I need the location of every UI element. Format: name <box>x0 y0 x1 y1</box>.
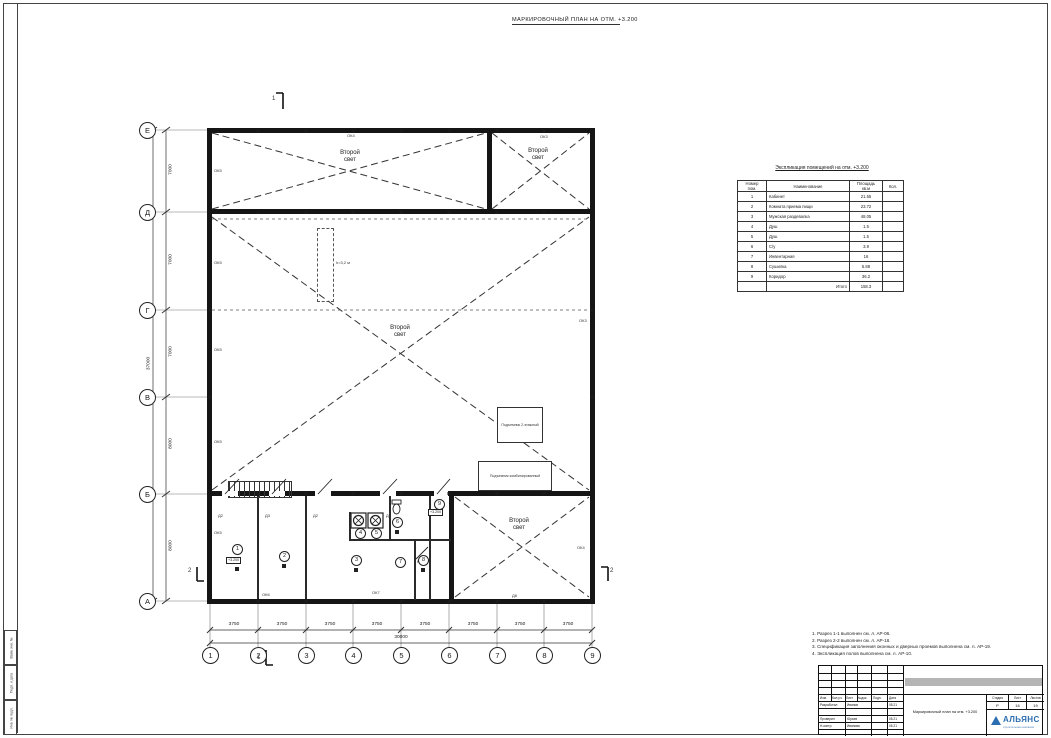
room-bubble-3: 3 <box>351 555 362 566</box>
dim-bottom-8: 3750 <box>553 622 583 627</box>
designation-band <box>905 678 1042 686</box>
section-mark-2-left: 2 <box>188 568 191 574</box>
sidebar-label: Инв. № подл. <box>10 702 14 735</box>
axis-row-g: Г <box>139 302 156 319</box>
room-bubble-2: 2 <box>279 551 290 562</box>
tb-name-1: Иванов <box>847 703 871 707</box>
cell-num-empty <box>738 282 767 292</box>
cell-area: 1.5 <box>850 222 883 232</box>
tb-date-3: 05.21 <box>889 724 903 728</box>
alliance-logo-icon <box>991 716 1001 725</box>
section-mark-1-bottom: 1 <box>257 655 260 661</box>
room-tag-square-8 <box>421 568 425 572</box>
schedule-row: 3Мужская раздевалка48.05 <box>738 212 904 222</box>
door-tag-d3-1: Д3 <box>265 513 270 518</box>
axis-row-d: Д <box>139 204 156 221</box>
dimension-ticks <box>149 127 595 646</box>
room-bubble-1: 1 <box>232 544 243 555</box>
column-markers <box>209 130 594 604</box>
tb-header-podp: Подп. <box>873 696 887 700</box>
sheet-title: МАРКИРОВОЧНЫЙ ПЛАН НА ОТМ. +3.200 <box>512 17 620 25</box>
cell-qty <box>883 212 904 222</box>
cell-num: 8 <box>738 262 767 272</box>
dim-left-3: 7000 <box>169 337 174 367</box>
axis-row-b: Б <box>139 486 156 503</box>
cell-area: 1.5 <box>850 232 883 242</box>
room-bubble-5: 5 <box>371 528 382 539</box>
axis-row-a: А <box>139 593 156 610</box>
cell-num: 1 <box>738 192 767 202</box>
dim-bottom-6: 3750 <box>458 622 488 627</box>
cell-num: 9 <box>738 272 767 282</box>
cell-qty <box>883 192 904 202</box>
cell-area: 36.2 <box>850 272 883 282</box>
equipment-box-2: Подъемник комбинированный <box>478 461 552 491</box>
cell-num: 3 <box>738 212 767 222</box>
total-label-cell: Итого <box>767 282 850 292</box>
cell-qty-empty <box>883 282 904 292</box>
alliance-logo-text: АЛЬЯНС <box>1003 715 1043 724</box>
tb-doc-title: Маркировочный план на отм. +3.200 <box>905 710 985 715</box>
dim-bottom-3: 3750 <box>315 622 345 627</box>
room-bubble-7: 7 <box>395 557 406 568</box>
second-light-label-br: Второй свет <box>487 518 551 532</box>
axis-col-5: 5 <box>393 647 410 664</box>
sidebar-cell-podp: Подп. и дата <box>4 665 17 700</box>
cell-num: 4 <box>738 222 767 232</box>
tb-date-1: 05.21 <box>889 703 903 707</box>
schedule-row: 4Душ1.5 <box>738 222 904 232</box>
cell-qty <box>883 222 904 232</box>
door-leaves <box>225 479 450 559</box>
cell-name: Коридор <box>767 272 850 282</box>
schedule-row: 6С/у3.9 <box>738 242 904 252</box>
title-block: Изм. Кол.уч. Лист №док. Подп. Дата Разра… <box>818 665 1043 735</box>
cell-num: 7 <box>738 252 767 262</box>
dim-left-total: 37000 <box>147 346 152 382</box>
schedule-total-row: Итого 158.3 <box>738 282 904 292</box>
cell-num: 6 <box>738 242 767 252</box>
tb-list-label: Лист <box>1009 696 1026 700</box>
alliance-logo-subtext: строительная компания <box>1003 725 1043 729</box>
cell-name: Сушилка <box>767 262 850 272</box>
room-tag-square-1 <box>235 567 239 571</box>
window-tag-ok5-2: ОК5 <box>214 260 222 265</box>
axis-extensions <box>155 130 592 647</box>
axis-col-3: 3 <box>298 647 315 664</box>
sidebar-label: Подп. и дата <box>10 667 14 700</box>
second-light-label-tr: Второй свет <box>506 148 570 162</box>
cell-area: 5.88 <box>850 262 883 272</box>
cell-area: 3.9 <box>850 242 883 252</box>
cell-name: Мужская раздевалка <box>767 212 850 222</box>
door-tag-d8: Д8 <box>512 593 517 598</box>
window-tag-ok6: ОК6 <box>262 592 270 597</box>
toilet-icon <box>392 500 401 514</box>
dim-bottom-4: 3750 <box>362 622 392 627</box>
cell-qty <box>883 242 904 252</box>
level-mark-room1: +3.200 <box>226 557 241 564</box>
axis-col-8: 8 <box>536 647 553 664</box>
tb-header-izm: Изм. <box>820 696 831 700</box>
schedule-row: 9Коридор36.2 <box>738 272 904 282</box>
dim-bottom-total: 30000 <box>381 635 421 640</box>
schedule-row: 7Инвентарная16 <box>738 252 904 262</box>
window-tag-ok5-3: ОК5 <box>214 347 222 352</box>
tb-stage-label: Стадия <box>987 696 1008 700</box>
dim-left-1: 7000 <box>169 155 174 185</box>
room-bubble-4: 4 <box>355 528 366 539</box>
cell-name: Комната приема пищи <box>767 202 850 212</box>
section-flags <box>197 93 608 665</box>
door-openings <box>222 491 448 496</box>
second-light-label-tl: Второй свет <box>318 150 382 164</box>
axis-row-v: В <box>139 389 156 406</box>
drawing-sheet: МАРКИРОВОЧНЫЙ ПЛАН НА ОТМ. +3.200 Подъем… <box>0 0 1051 738</box>
cell-name: Душ <box>767 232 850 242</box>
schedule-row: 8Сушилка5.88 <box>738 262 904 272</box>
room-bubble-6: 6 <box>392 517 403 528</box>
door-tag-d2-3: Д2 <box>386 513 391 518</box>
note-line-1: 1. Разрез 1-1 выполнен см. л. АР-06. <box>812 631 991 638</box>
cell-num: 5 <box>738 232 767 242</box>
axis-col-7: 7 <box>489 647 506 664</box>
window-tag-ok5-1: ОК5 <box>214 168 222 173</box>
room-tag-square-3 <box>354 568 358 572</box>
col-header-num: Номер пом. <box>738 181 767 192</box>
tb-header-data: Дата <box>889 696 903 700</box>
total-value-cell: 158.3 <box>850 282 883 292</box>
tb-role-2: Проверил <box>820 717 845 721</box>
schedule-row: 1Кабинет21.55 <box>738 192 904 202</box>
tb-list-value: 16 <box>1009 703 1026 708</box>
window-tag-ok5-5: ОК5 <box>214 530 222 535</box>
cell-name: Душ <box>767 222 850 232</box>
dim-bottom-1: 3750 <box>219 622 249 627</box>
dim-left-5: 8000 <box>169 531 174 561</box>
window-tag-ok5-4: ОК5 <box>214 439 222 444</box>
col-header-name: Наименование <box>767 181 850 192</box>
tb-name-2: Юрьев <box>847 717 871 721</box>
axis-dashed-lines <box>212 219 589 310</box>
room-tag-square-2 <box>282 564 286 568</box>
tb-stage-value: Р <box>987 703 1008 708</box>
tb-role-3: Н.контр. <box>820 724 845 728</box>
cell-name: С/у <box>767 242 850 252</box>
cell-num: 2 <box>738 202 767 212</box>
axis-col-9: 9 <box>584 647 601 664</box>
axis-col-1: 1 <box>202 647 219 664</box>
window-tag-ok7: ОК7 <box>372 590 380 595</box>
dim-bottom-7: 3750 <box>505 622 535 627</box>
cell-qty <box>883 262 904 272</box>
tb-listov-label: Листов <box>1027 696 1044 700</box>
shaft-height-label: h=3,2 м <box>336 260 350 265</box>
cell-qty <box>883 272 904 282</box>
axis-col-6: 6 <box>441 647 458 664</box>
tb-header-list: Лист <box>846 696 857 700</box>
tb-date-2: 05.21 <box>889 717 903 721</box>
tb-header-kol: Кол.уч. <box>832 696 845 700</box>
section-mark-2-right: 2 <box>610 568 613 574</box>
sidebar-label: Взам. инв. № <box>10 632 14 665</box>
tb-listov-value: 19 <box>1027 703 1044 708</box>
level-mark-room9: +3.200 <box>428 509 443 516</box>
col-header-qty: Кол. <box>883 181 904 192</box>
note-line-4: 4. Экспликация полов выполнена см. л. АР… <box>812 651 991 658</box>
tb-role-1: Разработал <box>820 703 845 707</box>
window-tag-ok4-top: ОК4 <box>347 133 355 138</box>
col-header-area: Площадь кв.м <box>850 181 883 192</box>
room-tag-square-6 <box>395 530 399 534</box>
room-bubble-8: 8 <box>418 555 429 566</box>
general-notes: 1. Разрез 1-1 выполнен см. л. АР-06. 2. … <box>812 631 991 658</box>
note-line-2: 2. Разрез 2-2 выполнен см. л. АР-18. <box>812 638 991 645</box>
tb-name-3: Иванова <box>847 724 871 728</box>
cell-area: 23.72 <box>850 202 883 212</box>
cell-area: 48.05 <box>850 212 883 222</box>
axis-row-e: Е <box>139 122 156 139</box>
cell-qty <box>883 202 904 212</box>
window-tag-ok3-top: ОК3 <box>540 134 548 139</box>
cell-name: Инвентарная <box>767 252 850 262</box>
door-tag-d2-2: Д2 <box>313 513 318 518</box>
dim-bottom-2: 3750 <box>267 622 297 627</box>
cell-area: 21.55 <box>850 192 883 202</box>
schedule-title: Экспликация помещений на отм. +3.200 <box>742 165 902 171</box>
dim-left-2: 7000 <box>169 245 174 275</box>
second-light-label-mid: Второй свет <box>368 325 432 339</box>
cell-qty <box>883 252 904 262</box>
schedule-row: 2Комната приема пищи23.72 <box>738 202 904 212</box>
schedule-header-row: Номер пом. Наименование Площадь кв.м Кол… <box>738 181 904 192</box>
plan-linework <box>0 0 1051 738</box>
shower-cabins <box>351 513 383 528</box>
note-line-3: 3. Спецификация заполнения оконных и две… <box>812 644 991 651</box>
axis-col-4: 4 <box>345 647 362 664</box>
door-tag-d2-1: Д2 <box>218 513 223 518</box>
equipment-box-1: Подъемник 2-этажный <box>497 407 543 443</box>
schedule-row: 5Душ1.5 <box>738 232 904 242</box>
cell-qty <box>883 232 904 242</box>
section-mark-1-top: 1 <box>272 96 275 102</box>
dim-bottom-5: 3750 <box>410 622 440 627</box>
dimension-lines <box>153 130 592 643</box>
tb-header-doc: №док. <box>858 696 871 700</box>
cell-name: Кабинет <box>767 192 850 202</box>
window-tag-ok4-right: ОК4 <box>577 545 585 550</box>
sidebar-cell-inv: Инв. № подл. <box>4 700 17 735</box>
room-schedule-table: Номер пом. Наименование Площадь кв.м Кол… <box>737 180 904 292</box>
cell-area: 16 <box>850 252 883 262</box>
dim-left-4: 8000 <box>169 429 174 459</box>
sidebar-cell-vzam: Взам. инв. № <box>4 630 17 665</box>
window-tag-ok3-right: ОК3 <box>579 318 587 323</box>
